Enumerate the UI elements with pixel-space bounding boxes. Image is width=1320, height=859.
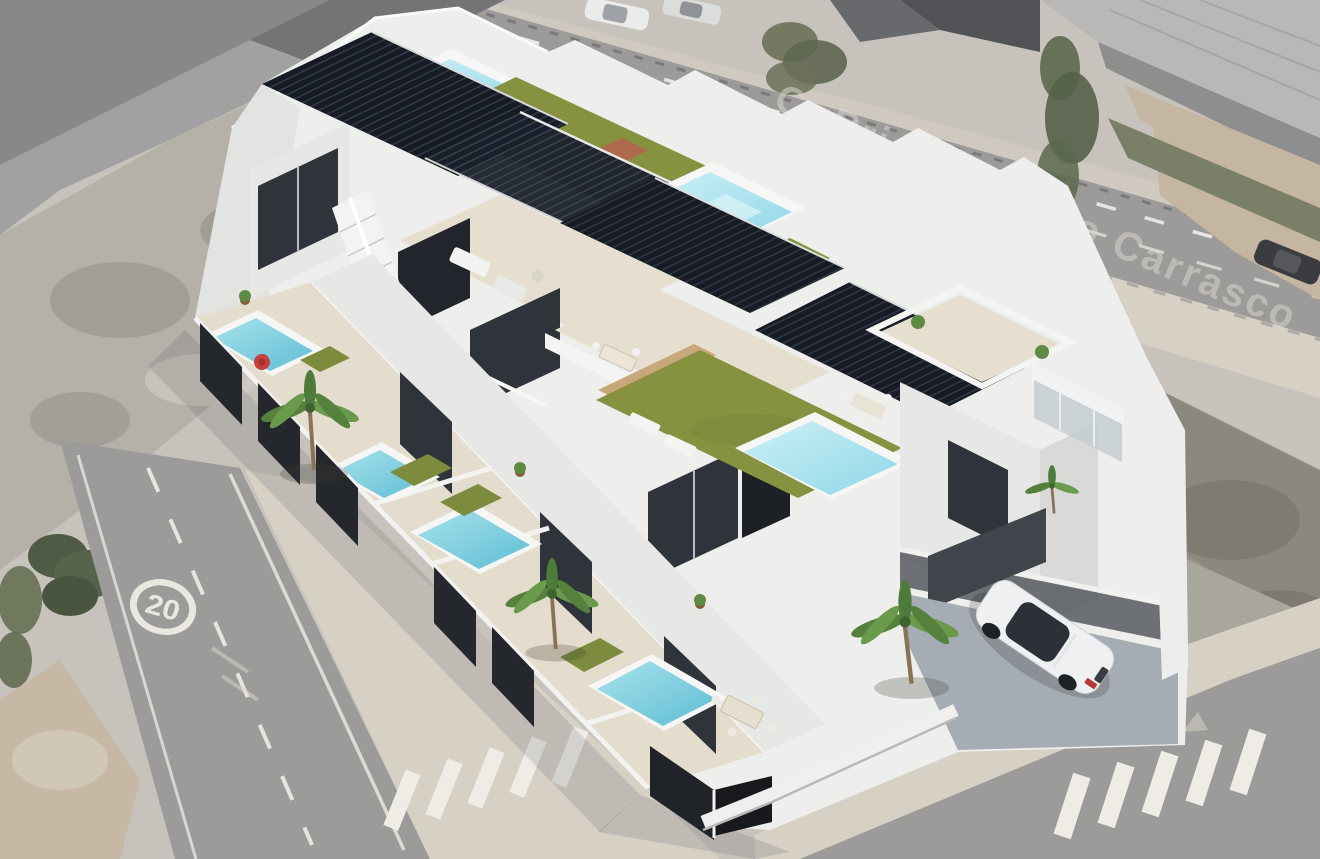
chair <box>754 696 763 705</box>
terrace-plant <box>911 315 925 329</box>
chair <box>858 418 866 426</box>
chair <box>728 728 737 737</box>
chair <box>884 394 892 402</box>
chair <box>712 696 721 705</box>
aerial-composite-image: 20 <box>0 0 1320 859</box>
chair <box>768 724 777 733</box>
float-center <box>259 359 266 366</box>
chair <box>842 390 850 398</box>
planter-plant <box>694 594 706 606</box>
chair <box>632 348 640 356</box>
coffee-table <box>532 270 544 282</box>
chair <box>592 342 600 350</box>
planter-plant <box>239 290 251 302</box>
right-boundary-wall <box>1158 552 1188 680</box>
planter-plant <box>514 462 526 474</box>
terrace-plant <box>1035 345 1049 359</box>
